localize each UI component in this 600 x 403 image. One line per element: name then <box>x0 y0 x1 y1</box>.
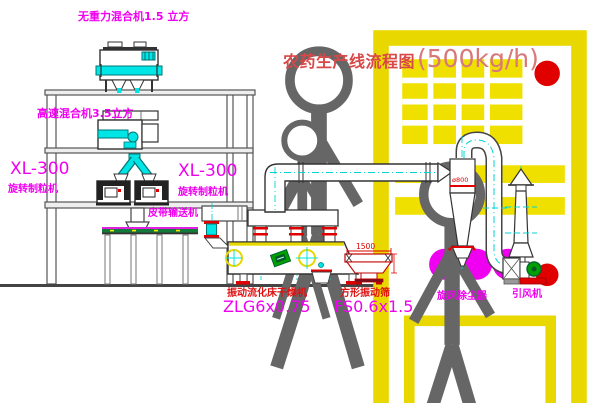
label-granulator-right-model: XL-300 <box>178 163 237 180</box>
control-cabinet-top <box>381 38 579 403</box>
label-gravity-mixer: 无重力混合机1.5 立方 <box>78 11 189 22</box>
label-fan: 引风机 <box>512 290 542 300</box>
label-cyclone-diameter: ø800 <box>452 177 468 184</box>
title-capacity: (500kg/h) <box>417 44 539 73</box>
gravity-mixer-machine <box>96 42 162 93</box>
page-title: 农药生产线流程图 (500kg/h) <box>283 44 539 73</box>
title-chinese: 农药生产线流程图 <box>283 48 415 72</box>
flow-diagram-canvas: 农药生产线流程图 (500kg/h) 无重力混合机1.5 立方 高速混合机3.5… <box>0 0 600 403</box>
granulator-right-machine <box>134 181 169 206</box>
label-high-speed-mixer: 高速混合机3.5立方 <box>37 108 134 119</box>
label-belt-conveyor: 皮带输送机 <box>148 209 198 219</box>
label-cyclone: 旋风除尘器 <box>437 292 487 302</box>
label-granulator-right-name: 旋转制粒机 <box>178 188 228 198</box>
label-granulator-left-model: XL-300 <box>10 161 69 178</box>
label-screen-length-dim: 1500 <box>356 243 375 251</box>
feed-hopper <box>202 206 247 221</box>
label-granulator-left-name: 旋转制粒机 <box>8 185 58 195</box>
y-pipe <box>114 154 156 184</box>
person-icon-roof <box>277 51 359 367</box>
belt-conveyor-machine <box>102 227 198 284</box>
granulator-left-machine <box>96 181 131 206</box>
label-dryer-model: ZLG6x0.75 <box>223 299 311 315</box>
label-screen-model: FS0.6x1.5 <box>334 299 413 315</box>
